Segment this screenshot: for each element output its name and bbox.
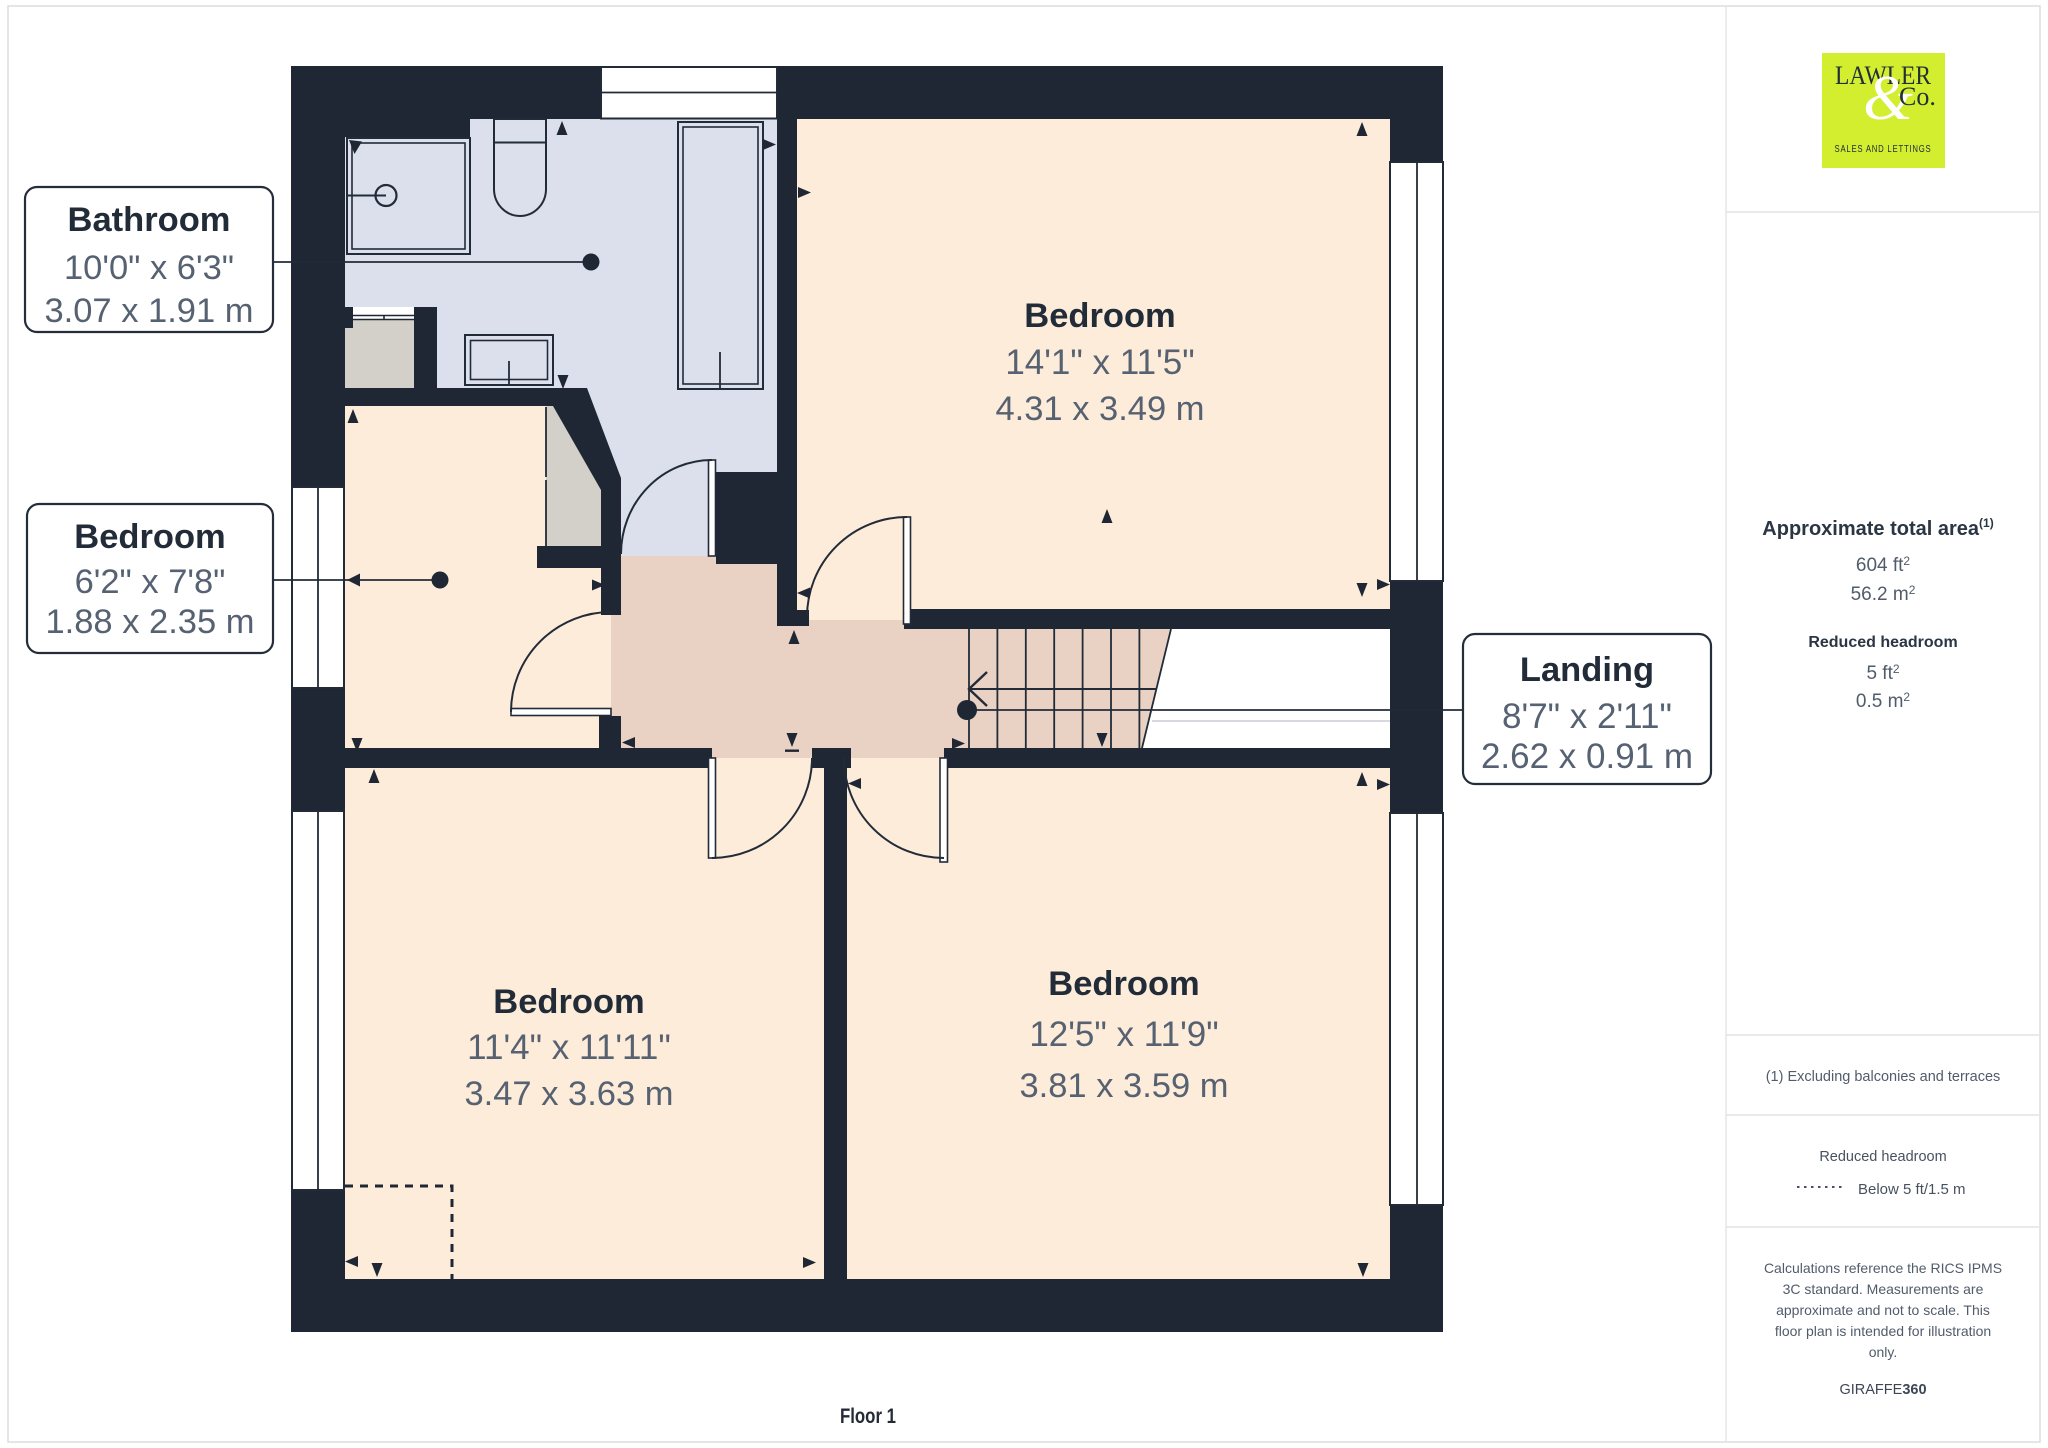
svg-text:Below 5 ft/1.5 m: Below 5 ft/1.5 m [1858, 1181, 1966, 1198]
svg-text:Landing: Landing [1520, 651, 1654, 689]
svg-text:11'4" x 11'11": 11'4" x 11'11" [467, 1028, 671, 1067]
svg-text:Bedroom: Bedroom [1048, 965, 1199, 1003]
svg-text:Bedroom: Bedroom [1024, 297, 1175, 335]
svg-text:Reduced headroom: Reduced headroom [1819, 1149, 1946, 1165]
svg-text:Calculations reference the RIC: Calculations reference the RICS IPMS [1764, 1260, 2002, 1276]
svg-text:0.5 m2: 0.5 m2 [1856, 690, 1911, 712]
svg-text:3.07 x 1.91 m: 3.07 x 1.91 m [44, 292, 253, 330]
svg-text:approximate and not to scale.: approximate and not to scale. This [1776, 1302, 1990, 1318]
svg-text:Reduced headroom: Reduced headroom [1808, 634, 1957, 651]
svg-text:8'7" x 2'11": 8'7" x 2'11" [1502, 697, 1672, 736]
svg-text:3C standard. Measurements are: 3C standard. Measurements are [1783, 1281, 1984, 1297]
svg-text:10'0" x 6'3": 10'0" x 6'3" [64, 249, 234, 287]
svg-text:Bedroom: Bedroom [493, 983, 644, 1021]
svg-text:floor plan is intended for ill: floor plan is intended for illustration [1775, 1323, 1991, 1339]
svg-text:GIRAFFE360: GIRAFFE360 [1839, 1382, 1926, 1398]
svg-text:4.31 x 3.49 m: 4.31 x 3.49 m [995, 390, 1204, 428]
svg-text:14'1" x 11'5": 14'1" x 11'5" [1005, 343, 1194, 382]
svg-text:1.88 x 2.35 m: 1.88 x 2.35 m [45, 603, 254, 641]
svg-text:Floor 1: Floor 1 [840, 1405, 896, 1428]
svg-text:3.81 x 3.59 m: 3.81 x 3.59 m [1019, 1067, 1228, 1105]
svg-text:2.62 x 0.91 m: 2.62 x 0.91 m [1481, 737, 1693, 776]
svg-text:(1) Excluding balconies and te: (1) Excluding balconies and terraces [1766, 1069, 2001, 1085]
svg-text:12'5" x 11'9": 12'5" x 11'9" [1029, 1015, 1218, 1054]
svg-text:Co.: Co. [1899, 82, 1936, 111]
svg-text:56.2 m2: 56.2 m2 [1851, 583, 1916, 605]
svg-text:Approximate total area(1): Approximate total area(1) [1762, 516, 1993, 540]
svg-text:only.: only. [1869, 1344, 1898, 1360]
svg-text:3.47 x 3.63 m: 3.47 x 3.63 m [464, 1075, 673, 1113]
svg-text:SALES AND LETTINGS: SALES AND LETTINGS [1835, 144, 1932, 155]
svg-text:604 ft2: 604 ft2 [1856, 554, 1911, 576]
svg-text:6'2" x 7'8": 6'2" x 7'8" [75, 563, 226, 601]
svg-text:Bedroom: Bedroom [74, 518, 225, 556]
svg-text:Bathroom: Bathroom [68, 201, 231, 239]
